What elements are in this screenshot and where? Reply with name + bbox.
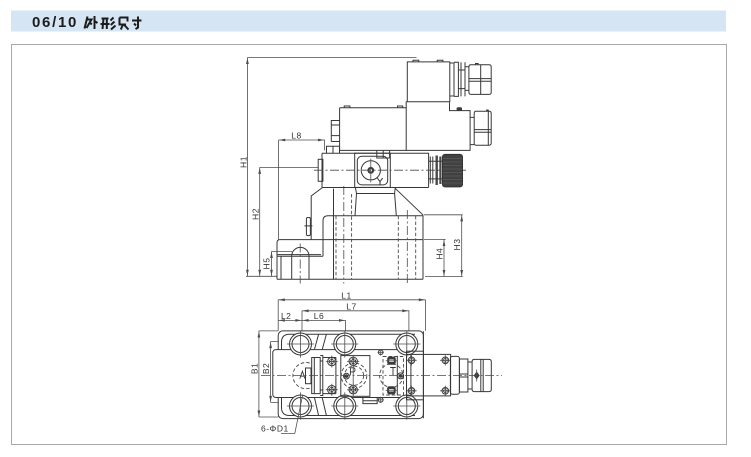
svg-text:L1: L1 xyxy=(341,291,351,301)
svg-text:H3: H3 xyxy=(452,239,462,251)
svg-text:06/10: 06/10 xyxy=(32,14,78,31)
svg-text:H2: H2 xyxy=(251,208,261,220)
svg-text:6-ΦD1: 6-ΦD1 xyxy=(261,424,289,434)
svg-text:L2: L2 xyxy=(281,311,291,321)
svg-text:H4: H4 xyxy=(435,248,445,260)
svg-text:H5: H5 xyxy=(262,258,272,270)
svg-text:H1: H1 xyxy=(239,156,249,168)
svg-text:B1: B1 xyxy=(249,363,259,374)
svg-text:L8: L8 xyxy=(291,131,301,141)
svg-text:B2: B2 xyxy=(261,363,271,374)
svg-text:L7: L7 xyxy=(346,301,356,311)
svg-text:L6: L6 xyxy=(314,311,324,321)
